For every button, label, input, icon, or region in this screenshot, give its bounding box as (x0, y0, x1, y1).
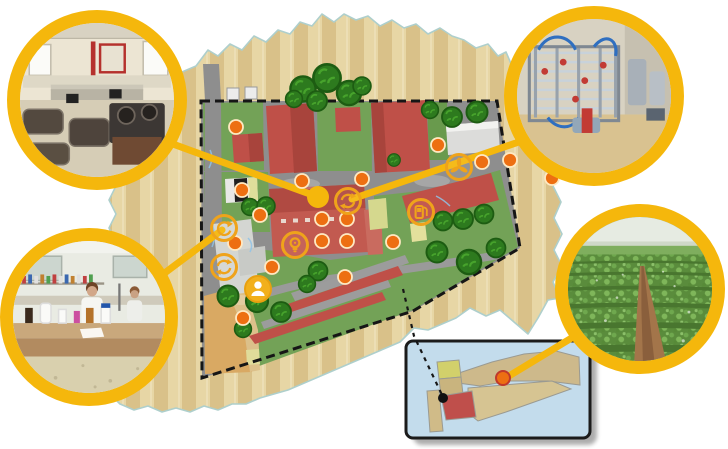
road (203, 64, 221, 101)
building-roof-shade (248, 133, 264, 162)
yellow-green-plot (368, 198, 388, 230)
shed-building (227, 88, 239, 100)
map-hotspot-dot[interactable] (386, 235, 400, 249)
hotspot-refresh-icon[interactable] (336, 189, 361, 214)
tree (427, 242, 448, 263)
tree (271, 302, 291, 322)
tree (353, 77, 371, 95)
building-roof-shade (290, 103, 317, 173)
map-hotspot-dot[interactable] (315, 212, 329, 226)
tree (434, 212, 453, 231)
callout-pilot-plant-photo[interactable] (504, 6, 684, 186)
map-hotspot-dot[interactable] (229, 120, 243, 134)
tree (422, 102, 439, 119)
tree (457, 250, 481, 274)
map-hotspot-dot[interactable] (503, 153, 517, 167)
hotspot-pinwheel-icon[interactable] (447, 155, 472, 180)
tree (453, 209, 473, 229)
map-hotspot-dot[interactable] (253, 208, 267, 222)
map-hotspot-dot[interactable] (235, 183, 249, 197)
yellow-green-plot (246, 349, 260, 365)
callout-crop-field-photo[interactable] (555, 204, 725, 374)
map-hotspot-dot[interactable] (236, 311, 250, 325)
tree (467, 102, 488, 123)
tree (442, 107, 462, 127)
map-hotspot-dot[interactable] (431, 138, 445, 152)
building-greenhouse-wing (238, 246, 267, 276)
virtual-tour-map (0, 0, 728, 449)
hotspot-rotate-icon[interactable] (212, 216, 237, 241)
hotspot-person-icon[interactable] (245, 276, 271, 302)
inset-hotspot-dot[interactable] (496, 371, 510, 385)
inset-parcel-yellow (437, 360, 461, 379)
hotspot-lightbulb-icon[interactable] (283, 233, 308, 258)
map-hotspot-dot[interactable] (355, 172, 369, 186)
tree (475, 205, 494, 224)
tree (286, 91, 303, 108)
hotspot-refresh-icon[interactable] (212, 255, 237, 280)
map-hotspot-dot[interactable] (475, 155, 489, 169)
inset-location-black-dot (438, 393, 448, 403)
tree (299, 276, 316, 293)
tree (487, 239, 506, 258)
laboratory-illustration (13, 241, 165, 393)
tree (218, 286, 239, 307)
callout-laboratory-photo[interactable] (0, 228, 178, 406)
tree (388, 154, 401, 167)
map-hotspot-dot[interactable] (315, 234, 329, 248)
map-hotspot-dot[interactable] (338, 270, 352, 284)
map-hotspot-dot[interactable] (340, 234, 354, 248)
inset-locator-map (406, 341, 597, 445)
featured-hotspot-dot[interactable] (307, 186, 329, 208)
map-hotspot-dot[interactable] (295, 174, 309, 188)
tree (307, 91, 327, 111)
crop-field-illustration (568, 217, 712, 361)
pilot-plant-illustration (517, 19, 671, 173)
callout-test-kitchen-photo[interactable] (7, 10, 187, 190)
building-red-small (335, 107, 361, 132)
tree (313, 64, 340, 91)
map-hotspot-dot[interactable] (265, 260, 279, 274)
test-kitchen-illustration (20, 23, 174, 177)
shed-building (245, 87, 257, 99)
hotspot-fuel-pump-icon[interactable] (409, 200, 434, 225)
